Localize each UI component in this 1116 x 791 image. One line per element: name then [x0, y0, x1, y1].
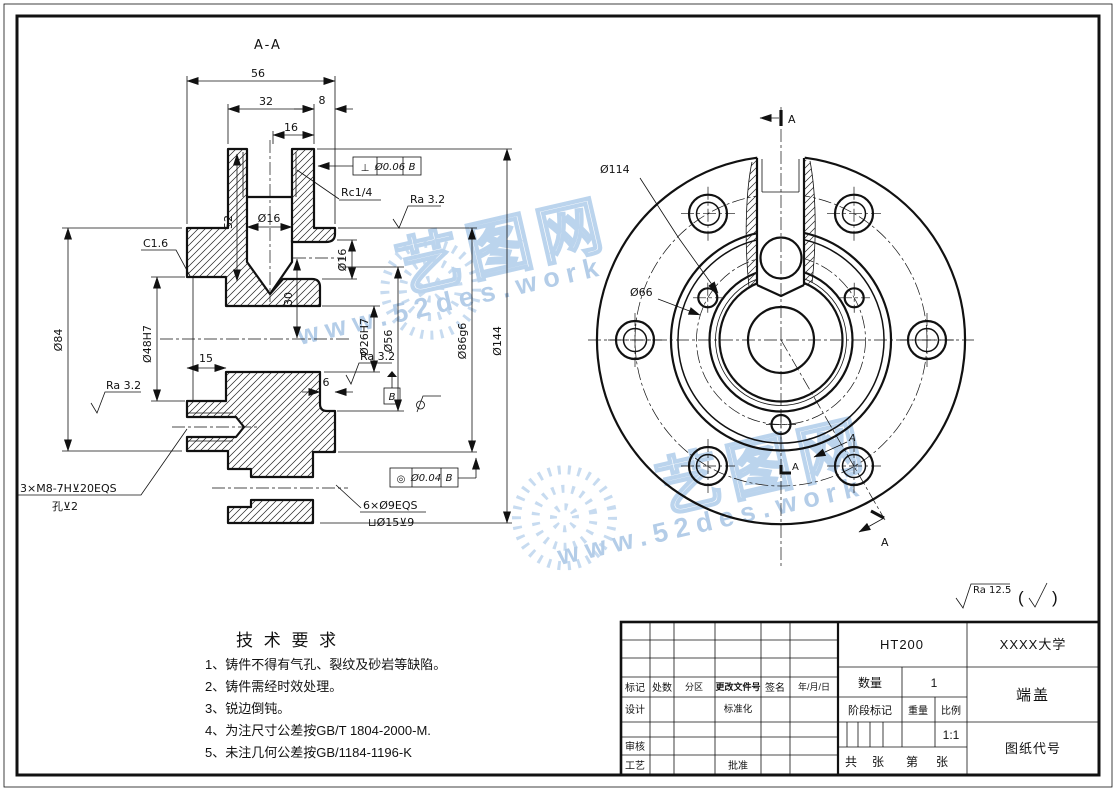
- sheet-total-unit: 张: [872, 755, 884, 769]
- tech-req-item: 4、为注尺寸公差按GB/T 1804-2000-M.: [205, 723, 431, 738]
- technical-requirements: 技 术 要 求 1、铸件不得有气孔、裂纹及砂岩等缺陷。 2、铸件需经时效处理。 …: [205, 631, 446, 760]
- svg-text:32: 32: [259, 95, 273, 108]
- surface-finish-top: Ra 3.2: [393, 193, 445, 228]
- svg-text:30: 30: [282, 292, 295, 306]
- leader-dia66: Ø66: [630, 286, 700, 315]
- row-process-label: 工艺: [625, 760, 645, 772]
- general-finish-note: Ra 12.5 ( ): [956, 583, 1058, 608]
- svg-text:A: A: [792, 462, 799, 473]
- title-block: 标记 处数 分区 更改文件号 签名 年/月/日 设计 标准化 审核 工艺 批准 …: [621, 622, 1099, 775]
- sheet-no-label: 第: [906, 755, 918, 769]
- svg-text:15: 15: [199, 352, 213, 365]
- svg-text:): ): [1052, 588, 1058, 607]
- svg-text:52: 52: [222, 215, 235, 229]
- row-standard-label: 标准化: [724, 703, 753, 715]
- fcf-perpendicularity: ⊥ Ø0.06 B: [318, 157, 421, 175]
- dimension-16: 16: [273, 121, 314, 144]
- svg-text:Ra 12.5: Ra 12.5: [973, 585, 1011, 596]
- front-view: Ø114 Ø66 A A A A: [588, 107, 974, 567]
- svg-text:B: B: [389, 392, 396, 403]
- fcf-concentricity: ◎ Ø0.04 B: [390, 458, 476, 487]
- svg-text:B: B: [409, 162, 416, 173]
- row-approve-label: 批准: [728, 759, 748, 772]
- qty-value: 1: [931, 676, 938, 690]
- section-title: A-A: [254, 38, 282, 53]
- cad-drawing-canvas: 艺图网 www.52des.work 艺图网 www.52des.work A-…: [0, 0, 1116, 791]
- part-name: 端盖: [1016, 687, 1050, 704]
- svg-text:◎: ◎: [397, 474, 406, 485]
- dimension-8: 8: [294, 94, 353, 109]
- svg-text:B: B: [446, 473, 453, 484]
- rev-header: 处数: [652, 681, 672, 694]
- svg-text:⊔Ø15⊻9: ⊔Ø15⊻9: [368, 516, 414, 529]
- rev-header: 标记: [625, 682, 645, 694]
- surface-finish-circle-icon: [417, 396, 442, 412]
- note-m8-holes: 3×M8-7H⊻20EQS 孔⊻2: [18, 429, 187, 513]
- tech-req-item: 1、铸件不得有气孔、裂纹及砂岩等缺陷。: [205, 657, 446, 672]
- rev-header: 分区: [685, 682, 703, 692]
- drawing-no-label: 图纸代号: [1005, 741, 1061, 756]
- dimension-dia16-side: Ø16: [322, 240, 357, 279]
- svg-text:Ø56: Ø56: [382, 330, 395, 353]
- scale-value: 1:1: [943, 728, 960, 742]
- svg-text:Ø114: Ø114: [600, 163, 630, 176]
- svg-text:Ø0.06: Ø0.06: [374, 161, 405, 173]
- dimension-dia84: Ø84: [52, 228, 182, 451]
- company-name: XXXX大学: [1000, 637, 1067, 652]
- svg-text:Ø16: Ø16: [258, 212, 281, 225]
- svg-text:Ø16: Ø16: [336, 249, 349, 272]
- dimension-dia16-bore: Ø16: [247, 212, 292, 227]
- scale-label: 比例: [941, 704, 961, 717]
- svg-text:Rc1/4: Rc1/4: [341, 186, 372, 199]
- svg-text:Ø66: Ø66: [630, 286, 653, 299]
- svg-text:A: A: [848, 433, 856, 444]
- svg-text:3×M8-7H⊻20EQS: 3×M8-7H⊻20EQS: [20, 482, 117, 495]
- sheet-total-label: 共: [845, 755, 857, 769]
- tech-req-item: 5、未注几何公差按GB/1184-1196-K: [205, 745, 412, 760]
- tech-req-title: 技 术 要 求: [236, 631, 339, 650]
- material-value: HT200: [880, 637, 924, 652]
- svg-text:Ø86g6: Ø86g6: [456, 323, 469, 360]
- svg-text:C1.6: C1.6: [143, 237, 168, 250]
- rev-header: 更改文件号: [715, 681, 760, 692]
- tech-req-item: 3、锐边倒钝。: [205, 701, 290, 716]
- svg-text:Ra 3.2: Ra 3.2: [106, 379, 141, 392]
- svg-text:6: 6: [323, 376, 330, 389]
- drawing-sheet: 艺图网 www.52des.work 艺图网 www.52des.work A-…: [0, 0, 1116, 791]
- surface-finish-left: Ra 3.2: [91, 379, 141, 413]
- svg-text:⊥: ⊥: [361, 163, 370, 174]
- note-bolt-holes: 6×Ø9EQS ⊔Ø15⊻9: [336, 485, 426, 529]
- svg-text:8: 8: [319, 94, 326, 107]
- dimension-32: 32: [228, 95, 314, 144]
- stage-label: 阶段标记: [848, 703, 892, 717]
- note-chamfer: C1.6: [141, 237, 190, 276]
- weight-label: 重量: [908, 704, 928, 717]
- svg-text:Ø84: Ø84: [52, 329, 65, 352]
- svg-text:A: A: [881, 536, 889, 549]
- svg-text:孔⊻2: 孔⊻2: [52, 500, 78, 513]
- rev-header: 签名: [765, 681, 785, 694]
- watermark-2: 艺图网 www.52des.work: [507, 401, 881, 579]
- svg-text:16: 16: [284, 121, 298, 134]
- row-review-label: 审核: [625, 740, 645, 753]
- svg-text:Ø0.04: Ø0.04: [410, 472, 441, 484]
- leader-dia114: Ø114: [600, 163, 718, 293]
- svg-text:Ø144: Ø144: [491, 326, 504, 356]
- svg-text:(: (: [1018, 588, 1024, 607]
- qty-label: 数量: [858, 675, 882, 690]
- svg-text:A: A: [788, 113, 796, 126]
- svg-text:Ra 3.2: Ra 3.2: [410, 193, 445, 206]
- sheet-border: [4, 4, 1112, 787]
- svg-text:56: 56: [251, 67, 265, 80]
- svg-text:Ø48H7: Ø48H7: [141, 325, 154, 363]
- sheet-no-unit: 张: [936, 755, 948, 769]
- tech-req-item: 2、铸件需经时效处理。: [205, 679, 342, 694]
- svg-text:Ø26H7: Ø26H7: [358, 318, 371, 356]
- rev-header: 年/月/日: [798, 681, 830, 692]
- svg-text:6×Ø9EQS: 6×Ø9EQS: [363, 499, 417, 512]
- row-design-label: 设计: [625, 703, 645, 716]
